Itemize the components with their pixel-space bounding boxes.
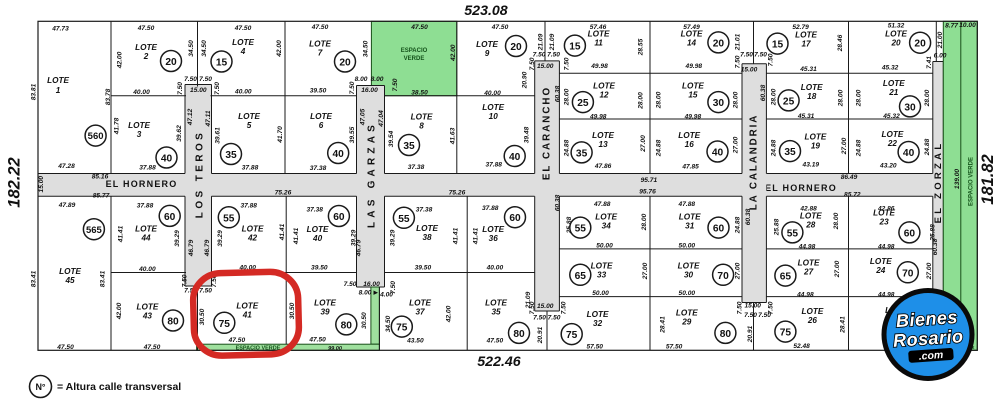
svg-text:ESPACIO: ESPACIO bbox=[401, 48, 428, 54]
svg-text:LOTE: LOTE bbox=[885, 30, 907, 39]
svg-text:27.00: 27.00 bbox=[732, 136, 739, 154]
svg-text:28.00: 28.00 bbox=[655, 91, 662, 109]
svg-text:39.54: 39.54 bbox=[388, 130, 395, 147]
svg-text:LOTE: LOTE bbox=[485, 299, 507, 308]
svg-text:28.00: 28.00 bbox=[641, 213, 648, 231]
svg-text:45.31: 45.31 bbox=[799, 66, 817, 73]
svg-text:10.00: 10.00 bbox=[959, 22, 976, 29]
svg-text:85.77: 85.77 bbox=[93, 192, 110, 199]
svg-text:565: 565 bbox=[86, 225, 103, 236]
svg-text:20: 20 bbox=[890, 39, 901, 48]
svg-text:7.50: 7.50 bbox=[547, 52, 560, 59]
svg-text:181.82: 181.82 bbox=[979, 154, 997, 204]
svg-text:20: 20 bbox=[713, 38, 725, 49]
svg-text:EL HORNERO: EL HORNERO bbox=[106, 179, 178, 189]
svg-text:37.88: 37.88 bbox=[482, 205, 499, 212]
svg-text:42.00: 42.00 bbox=[450, 44, 457, 62]
svg-text:LOTE: LOTE bbox=[678, 131, 700, 140]
svg-text:39.29: 39.29 bbox=[217, 230, 224, 247]
svg-text:LOTE: LOTE bbox=[47, 76, 69, 85]
svg-text:39.61: 39.61 bbox=[214, 127, 221, 144]
svg-text:12: 12 bbox=[599, 91, 609, 100]
svg-text:15: 15 bbox=[569, 42, 581, 53]
svg-text:85.72: 85.72 bbox=[844, 192, 861, 199]
svg-text:35: 35 bbox=[784, 147, 796, 158]
svg-text:47.05: 47.05 bbox=[359, 108, 366, 126]
svg-text:65: 65 bbox=[780, 272, 792, 283]
svg-text:65: 65 bbox=[575, 271, 587, 282]
svg-text:55: 55 bbox=[223, 213, 235, 224]
svg-text:8.00: 8.00 bbox=[359, 290, 372, 297]
svg-text:23: 23 bbox=[879, 218, 890, 227]
svg-text:55: 55 bbox=[398, 214, 410, 225]
svg-text:21.09: 21.09 bbox=[537, 33, 544, 51]
svg-text:83.78: 83.78 bbox=[105, 88, 112, 105]
svg-text:43.50: 43.50 bbox=[406, 337, 424, 344]
svg-text:49.98: 49.98 bbox=[590, 63, 608, 70]
svg-text:46.79: 46.79 bbox=[204, 239, 211, 257]
svg-text:37.88: 37.88 bbox=[485, 162, 502, 169]
svg-text:24.88: 24.88 bbox=[655, 139, 662, 157]
svg-text:25.88: 25.88 bbox=[929, 224, 936, 242]
svg-text:75.26: 75.26 bbox=[449, 190, 466, 197]
svg-text:41.70: 41.70 bbox=[277, 126, 284, 144]
svg-text:LOTE: LOTE bbox=[238, 112, 260, 121]
svg-text:46.79: 46.79 bbox=[355, 239, 362, 257]
svg-text:37.88: 37.88 bbox=[242, 165, 259, 172]
svg-text:LA CALANDRIA: LA CALANDRIA bbox=[749, 114, 760, 210]
svg-text:49.98: 49.98 bbox=[684, 113, 702, 120]
svg-text:34.50: 34.50 bbox=[188, 40, 195, 57]
svg-text:75: 75 bbox=[396, 323, 408, 334]
svg-text:57.50: 57.50 bbox=[666, 343, 683, 350]
svg-text:42.88: 42.88 bbox=[799, 206, 817, 213]
svg-text:7.50: 7.50 bbox=[199, 76, 212, 83]
svg-text:41.41: 41.41 bbox=[279, 223, 286, 241]
svg-text:7.50: 7.50 bbox=[529, 57, 536, 70]
svg-text:15.00: 15.00 bbox=[537, 303, 554, 310]
svg-text:44.98: 44.98 bbox=[796, 291, 814, 298]
svg-text:28.00: 28.00 bbox=[924, 89, 931, 107]
svg-text:75: 75 bbox=[566, 330, 578, 341]
svg-text:75: 75 bbox=[219, 319, 231, 330]
svg-text:2: 2 bbox=[143, 52, 149, 61]
svg-text:LOTE: LOTE bbox=[135, 43, 157, 52]
svg-text:47.11: 47.11 bbox=[205, 110, 212, 127]
svg-text:45.32: 45.32 bbox=[882, 113, 900, 120]
svg-text:27.00: 27.00 bbox=[640, 135, 647, 153]
svg-text:39.29: 39.29 bbox=[174, 230, 181, 247]
svg-text:39.50: 39.50 bbox=[310, 88, 327, 95]
svg-text:LOTE: LOTE bbox=[476, 40, 498, 49]
svg-text:37.38: 37.38 bbox=[310, 165, 327, 172]
svg-text:15: 15 bbox=[772, 40, 784, 51]
svg-text:LOTE: LOTE bbox=[595, 213, 617, 222]
svg-text:24: 24 bbox=[875, 266, 886, 275]
svg-text:13: 13 bbox=[599, 140, 609, 149]
svg-text:4: 4 bbox=[240, 47, 246, 56]
svg-text:LOTE: LOTE bbox=[242, 225, 264, 234]
svg-text:95.76: 95.76 bbox=[639, 189, 656, 196]
svg-text:37.38: 37.38 bbox=[408, 164, 425, 171]
svg-text:60.38: 60.38 bbox=[760, 84, 767, 101]
svg-text:39.62: 39.62 bbox=[176, 125, 183, 142]
svg-text:28.00: 28.00 bbox=[855, 89, 862, 107]
svg-text:57.49: 57.49 bbox=[683, 24, 700, 31]
svg-text:24.88: 24.88 bbox=[855, 139, 862, 157]
svg-text:60: 60 bbox=[509, 213, 521, 224]
svg-text:LOTE: LOTE bbox=[676, 309, 698, 318]
svg-text:LOTE: LOTE bbox=[795, 31, 817, 40]
svg-text:47.88: 47.88 bbox=[593, 201, 611, 208]
svg-text:LOTE: LOTE bbox=[801, 307, 823, 316]
svg-text:7.50: 7.50 bbox=[390, 281, 397, 294]
svg-text:60.38: 60.38 bbox=[554, 194, 561, 211]
svg-text:95.71: 95.71 bbox=[641, 177, 658, 184]
svg-text:34: 34 bbox=[602, 222, 612, 231]
svg-text:28.41: 28.41 bbox=[659, 316, 666, 334]
svg-text:30.50: 30.50 bbox=[361, 312, 368, 329]
svg-text:60: 60 bbox=[713, 224, 725, 235]
svg-text:47.50: 47.50 bbox=[486, 337, 504, 344]
svg-text:47.50: 47.50 bbox=[137, 25, 155, 32]
svg-text:7.50: 7.50 bbox=[548, 314, 561, 321]
svg-text:21.09: 21.09 bbox=[549, 33, 556, 51]
svg-text:9: 9 bbox=[485, 49, 490, 58]
svg-text:7.50: 7.50 bbox=[214, 82, 221, 95]
svg-text:40: 40 bbox=[509, 152, 521, 163]
svg-text:LOTE: LOTE bbox=[236, 302, 258, 311]
svg-text:28.46: 28.46 bbox=[837, 34, 844, 52]
svg-text:80: 80 bbox=[167, 317, 179, 328]
svg-text:7.50: 7.50 bbox=[767, 301, 774, 314]
svg-text:24.88: 24.88 bbox=[563, 139, 570, 157]
svg-text:47.50: 47.50 bbox=[56, 344, 74, 351]
svg-text:8: 8 bbox=[419, 122, 424, 131]
svg-text:27: 27 bbox=[803, 268, 814, 277]
svg-text:8.00: 8.00 bbox=[371, 76, 384, 83]
svg-text:42.00: 42.00 bbox=[276, 40, 283, 58]
svg-text:LOTE: LOTE bbox=[232, 38, 254, 47]
svg-text:40.00: 40.00 bbox=[486, 264, 504, 271]
svg-text:LOTE: LOTE bbox=[411, 113, 433, 122]
svg-text:27.00: 27.00 bbox=[642, 262, 649, 280]
svg-text:.com: .com bbox=[918, 349, 943, 363]
svg-text:35: 35 bbox=[403, 141, 415, 152]
svg-text:7.50: 7.50 bbox=[344, 281, 357, 288]
svg-text:39.29: 39.29 bbox=[390, 229, 397, 246]
svg-text:35: 35 bbox=[491, 308, 501, 317]
svg-text:47.50: 47.50 bbox=[228, 337, 246, 344]
svg-text:47.85: 47.85 bbox=[681, 163, 699, 170]
svg-text:19: 19 bbox=[811, 142, 821, 151]
svg-text:26: 26 bbox=[807, 316, 818, 325]
svg-text:15.00: 15.00 bbox=[744, 302, 761, 309]
svg-text:15.00: 15.00 bbox=[190, 87, 207, 94]
svg-text:LOTE: LOTE bbox=[591, 262, 613, 271]
svg-text:20: 20 bbox=[914, 39, 926, 50]
svg-text:28.00: 28.00 bbox=[637, 92, 644, 110]
svg-text:37.88: 37.88 bbox=[139, 165, 156, 172]
svg-text:70: 70 bbox=[902, 268, 914, 279]
svg-text:LOTE: LOTE bbox=[409, 299, 431, 308]
svg-text:60.38: 60.38 bbox=[745, 208, 752, 225]
svg-text:560: 560 bbox=[88, 131, 104, 142]
svg-text:47.73: 47.73 bbox=[51, 26, 69, 33]
svg-text:50.00: 50.00 bbox=[679, 242, 696, 249]
svg-text:80: 80 bbox=[720, 329, 732, 340]
svg-text:LOS TEROS: LOS TEROS bbox=[195, 130, 206, 218]
svg-text:39: 39 bbox=[320, 308, 330, 317]
svg-text:25.88: 25.88 bbox=[773, 218, 780, 236]
svg-text:42: 42 bbox=[247, 234, 258, 243]
svg-text:45.31: 45.31 bbox=[797, 113, 815, 120]
svg-text:21.00: 21.00 bbox=[937, 31, 944, 49]
svg-text:31: 31 bbox=[685, 222, 695, 231]
svg-text:24.88: 24.88 bbox=[770, 139, 777, 157]
svg-text:60: 60 bbox=[164, 212, 176, 223]
svg-text:LOTE: LOTE bbox=[135, 225, 157, 234]
svg-text:LOTE: LOTE bbox=[679, 213, 701, 222]
svg-text:29: 29 bbox=[681, 318, 692, 327]
svg-text:3: 3 bbox=[137, 130, 142, 139]
svg-text:7.41: 7.41 bbox=[926, 56, 933, 69]
svg-text:EL HORNERO: EL HORNERO bbox=[765, 183, 837, 193]
svg-text:47.28: 47.28 bbox=[57, 163, 75, 170]
svg-text:55: 55 bbox=[787, 228, 799, 239]
svg-text:7.50: 7.50 bbox=[754, 52, 767, 59]
svg-text:30.50: 30.50 bbox=[289, 302, 296, 319]
svg-text:15: 15 bbox=[216, 58, 228, 69]
svg-text:LAS GARZAS: LAS GARZAS bbox=[367, 121, 378, 228]
svg-text:7.50: 7.50 bbox=[177, 82, 184, 95]
svg-text:43.20: 43.20 bbox=[879, 163, 897, 170]
svg-text:44: 44 bbox=[140, 234, 151, 243]
svg-text:523.08: 523.08 bbox=[464, 3, 508, 19]
svg-text:50.00: 50.00 bbox=[679, 290, 696, 297]
svg-text:24.88: 24.88 bbox=[734, 216, 741, 234]
svg-text:30.50: 30.50 bbox=[199, 308, 206, 325]
svg-text:LOTE: LOTE bbox=[314, 299, 336, 308]
svg-text:83.81: 83.81 bbox=[30, 83, 37, 100]
svg-text:28.00: 28.00 bbox=[563, 88, 570, 106]
svg-text:47.86: 47.86 bbox=[594, 163, 612, 170]
svg-text:LOTE: LOTE bbox=[678, 262, 700, 271]
svg-text:LOTE: LOTE bbox=[881, 130, 903, 139]
svg-text:70: 70 bbox=[717, 271, 729, 282]
svg-text:57.46: 57.46 bbox=[590, 24, 607, 31]
svg-text:EL CARANCHO: EL CARANCHO bbox=[542, 86, 553, 180]
svg-text:LOTE: LOTE bbox=[136, 303, 158, 312]
svg-text:28.41: 28.41 bbox=[839, 316, 846, 334]
svg-text:LOTE: LOTE bbox=[870, 257, 892, 266]
svg-text:20: 20 bbox=[339, 58, 351, 69]
svg-text:47.12: 47.12 bbox=[187, 108, 194, 126]
svg-text:80: 80 bbox=[513, 329, 525, 340]
svg-text:41.41: 41.41 bbox=[117, 225, 124, 243]
svg-text:14: 14 bbox=[687, 39, 697, 48]
svg-text:522.46: 522.46 bbox=[477, 354, 521, 370]
svg-text:44.98: 44.98 bbox=[877, 243, 895, 250]
svg-text:45: 45 bbox=[64, 276, 75, 285]
svg-text:39.50: 39.50 bbox=[311, 264, 328, 271]
svg-text:182.22: 182.22 bbox=[6, 157, 24, 207]
svg-text:28: 28 bbox=[805, 221, 816, 230]
svg-text:37.38: 37.38 bbox=[306, 206, 323, 213]
svg-text:43: 43 bbox=[142, 312, 153, 321]
svg-text:47.50: 47.50 bbox=[491, 24, 509, 31]
svg-text:52.48: 52.48 bbox=[793, 343, 810, 350]
svg-text:LOTE: LOTE bbox=[307, 225, 329, 234]
svg-text:LOTE: LOTE bbox=[59, 267, 81, 276]
svg-text:15.00: 15.00 bbox=[38, 176, 45, 193]
svg-text:42.00: 42.00 bbox=[445, 305, 452, 323]
svg-text:LOTE: LOTE bbox=[587, 310, 609, 319]
svg-text:7.50: 7.50 bbox=[349, 81, 356, 94]
svg-text:1: 1 bbox=[56, 86, 61, 95]
svg-text:30: 30 bbox=[713, 98, 725, 109]
svg-text:32: 32 bbox=[593, 319, 603, 328]
svg-text:40.00: 40.00 bbox=[138, 266, 156, 273]
svg-text:LOTE: LOTE bbox=[592, 131, 614, 140]
svg-text:LOTE: LOTE bbox=[482, 225, 504, 234]
svg-text:41.41: 41.41 bbox=[472, 227, 479, 245]
svg-text:40: 40 bbox=[903, 148, 915, 159]
svg-text:7.50: 7.50 bbox=[533, 52, 546, 59]
svg-text:28.55: 28.55 bbox=[637, 38, 644, 56]
svg-text:LOTE: LOTE bbox=[310, 112, 332, 121]
svg-text:83.41: 83.41 bbox=[30, 270, 37, 287]
svg-text:50.00: 50.00 bbox=[592, 290, 609, 297]
svg-text:18: 18 bbox=[807, 92, 817, 101]
svg-text:44.98: 44.98 bbox=[798, 243, 816, 250]
svg-text:16: 16 bbox=[685, 140, 695, 149]
svg-text:55: 55 bbox=[575, 224, 587, 235]
svg-text:51.32: 51.32 bbox=[888, 23, 905, 30]
svg-text:LOTE: LOTE bbox=[482, 103, 504, 112]
svg-text:47.50: 47.50 bbox=[234, 25, 252, 32]
svg-text:= Altura calle transversal: = Altura calle transversal bbox=[57, 381, 181, 393]
svg-text:41.41: 41.41 bbox=[452, 227, 459, 245]
svg-text:7.50: 7.50 bbox=[744, 312, 757, 319]
svg-text:80: 80 bbox=[341, 320, 353, 331]
svg-text:47.04: 47.04 bbox=[378, 110, 385, 128]
svg-text:16.00: 16.00 bbox=[361, 87, 378, 94]
svg-text:37.88: 37.88 bbox=[240, 202, 257, 209]
svg-text:41.41: 41.41 bbox=[293, 227, 300, 245]
svg-text:40: 40 bbox=[333, 149, 345, 160]
svg-text:60: 60 bbox=[904, 228, 916, 239]
svg-text:47.88: 47.88 bbox=[678, 201, 696, 208]
svg-text:22: 22 bbox=[887, 139, 898, 148]
svg-text:52.79: 52.79 bbox=[792, 24, 809, 31]
svg-text:75: 75 bbox=[780, 328, 792, 339]
svg-text:42.00: 42.00 bbox=[116, 302, 123, 320]
svg-text:83.41: 83.41 bbox=[99, 270, 106, 287]
svg-text:46.79: 46.79 bbox=[188, 239, 195, 257]
svg-text:LOTE: LOTE bbox=[883, 79, 905, 88]
svg-text:5: 5 bbox=[247, 121, 252, 130]
svg-text:VERDE: VERDE bbox=[404, 56, 425, 62]
svg-text:35: 35 bbox=[225, 150, 237, 161]
svg-text:7.50: 7.50 bbox=[560, 301, 567, 314]
svg-text:25: 25 bbox=[783, 96, 795, 107]
svg-text:LOTE: LOTE bbox=[801, 83, 823, 92]
svg-text:27.00: 27.00 bbox=[841, 137, 848, 155]
svg-text:21.01: 21.01 bbox=[734, 33, 741, 51]
svg-text:30: 30 bbox=[684, 271, 694, 280]
svg-text:7.50: 7.50 bbox=[736, 301, 743, 314]
svg-text:27.00: 27.00 bbox=[926, 262, 933, 280]
svg-text:36: 36 bbox=[489, 234, 499, 243]
svg-text:44.98: 44.98 bbox=[877, 291, 895, 298]
svg-text:139.00: 139.00 bbox=[954, 169, 961, 190]
svg-text:LOTE: LOTE bbox=[309, 40, 331, 49]
svg-text:20: 20 bbox=[165, 57, 177, 68]
svg-text:27.00: 27.00 bbox=[734, 262, 741, 280]
svg-text:15.00: 15.00 bbox=[537, 63, 554, 70]
svg-text:33: 33 bbox=[597, 271, 607, 280]
svg-text:40: 40 bbox=[312, 234, 323, 243]
svg-text:7.50: 7.50 bbox=[181, 274, 188, 287]
svg-text:LOTE: LOTE bbox=[593, 82, 615, 91]
svg-text:LOTE: LOTE bbox=[804, 133, 826, 142]
svg-text:LOTE: LOTE bbox=[798, 259, 820, 268]
svg-text:10: 10 bbox=[489, 112, 499, 121]
svg-text:60: 60 bbox=[333, 212, 345, 223]
svg-text:34.50: 34.50 bbox=[201, 40, 208, 57]
svg-text:24.88: 24.88 bbox=[924, 138, 931, 156]
svg-text:50.00: 50.00 bbox=[596, 242, 613, 249]
svg-text:75.26: 75.26 bbox=[275, 190, 292, 197]
svg-text:40: 40 bbox=[161, 154, 173, 165]
svg-text:6.00: 6.00 bbox=[934, 53, 947, 60]
svg-text:20.90: 20.90 bbox=[521, 71, 528, 89]
svg-text:7.50: 7.50 bbox=[184, 76, 197, 83]
svg-text:28.00: 28.00 bbox=[837, 89, 844, 107]
svg-text:41: 41 bbox=[242, 311, 253, 320]
svg-text:8.00: 8.00 bbox=[355, 76, 368, 83]
svg-text:47.50: 47.50 bbox=[308, 336, 326, 343]
svg-text:45.32: 45.32 bbox=[881, 65, 899, 72]
svg-text:20: 20 bbox=[510, 42, 522, 53]
svg-text:37: 37 bbox=[415, 308, 425, 317]
svg-text:37.88: 37.88 bbox=[137, 202, 154, 209]
svg-text:47.50: 47.50 bbox=[311, 24, 329, 31]
svg-text:N°: N° bbox=[35, 382, 45, 392]
svg-text:7.50: 7.50 bbox=[740, 52, 753, 59]
svg-text:15.00: 15.00 bbox=[741, 67, 758, 74]
svg-text:40: 40 bbox=[712, 148, 724, 159]
svg-text:28.00: 28.00 bbox=[833, 212, 840, 230]
svg-text:7.50: 7.50 bbox=[767, 53, 774, 66]
svg-text:39.50: 39.50 bbox=[415, 264, 432, 271]
svg-text:85.16: 85.16 bbox=[92, 174, 109, 181]
svg-text:39.48: 39.48 bbox=[523, 126, 530, 143]
svg-text:LOTE: LOTE bbox=[128, 121, 150, 130]
svg-text:11: 11 bbox=[594, 39, 603, 48]
svg-text:LOTE: LOTE bbox=[416, 224, 438, 233]
svg-text:40.00: 40.00 bbox=[132, 89, 150, 96]
svg-text:17: 17 bbox=[801, 40, 811, 49]
svg-text:21: 21 bbox=[888, 88, 899, 97]
svg-text:42.86: 42.86 bbox=[877, 206, 895, 213]
svg-text:7.50: 7.50 bbox=[563, 57, 570, 70]
svg-text:41.78: 41.78 bbox=[113, 117, 120, 135]
svg-text:60.38: 60.38 bbox=[554, 85, 561, 102]
svg-text:49.98: 49.98 bbox=[589, 113, 607, 120]
svg-text:25: 25 bbox=[577, 98, 589, 109]
